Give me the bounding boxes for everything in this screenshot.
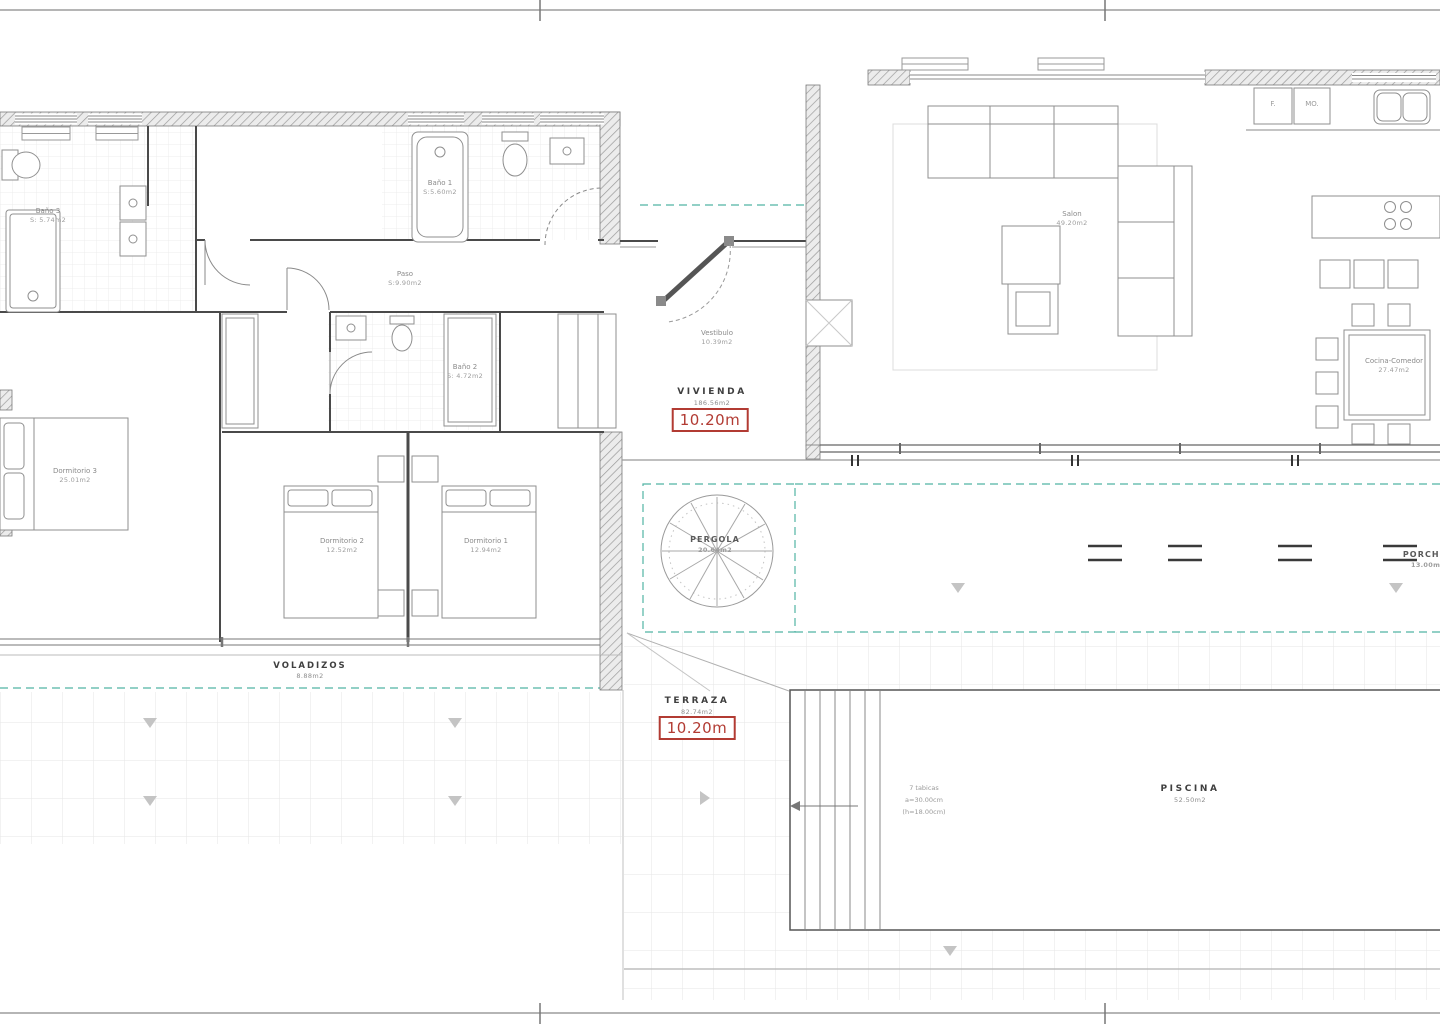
kitchen-stools bbox=[1320, 260, 1418, 288]
dining-table bbox=[1316, 304, 1430, 444]
right-wing bbox=[806, 58, 1440, 459]
right-wing-glazing bbox=[820, 443, 1440, 454]
floor-plan-sheet: Baño 3 S: 5.74m2 Baño 1 S:5.60m2 Paso S:… bbox=[0, 0, 1440, 1024]
porch-band bbox=[622, 455, 1440, 607]
entry-closet bbox=[806, 300, 852, 346]
left-wing bbox=[0, 112, 622, 690]
pool bbox=[790, 690, 1440, 930]
kitchen-sink bbox=[1374, 90, 1430, 124]
pergola-tree bbox=[661, 495, 773, 607]
pool-steps-note: 7 tabicas a=30.00cm (h=18.00cm) bbox=[902, 782, 945, 818]
floor-plan-canvas bbox=[0, 0, 1440, 1024]
porch-beams bbox=[1088, 546, 1417, 560]
terraza-height-tag: 10.20m bbox=[659, 716, 736, 740]
fridge-label: F. bbox=[1270, 100, 1275, 108]
entrance-door-leaf bbox=[662, 242, 728, 302]
landscape-dashed-lines bbox=[0, 205, 1440, 688]
salon-sofas bbox=[928, 106, 1192, 336]
vivienda-height-tag: 10.20m bbox=[672, 408, 749, 432]
left-wing-glazing bbox=[0, 637, 622, 655]
salon-coffee-tables bbox=[1002, 226, 1060, 334]
vestibule-entrance bbox=[620, 236, 806, 322]
kitchen-island bbox=[1312, 196, 1440, 238]
oven-label: MO. bbox=[1305, 100, 1319, 108]
kitchen bbox=[1246, 88, 1440, 444]
